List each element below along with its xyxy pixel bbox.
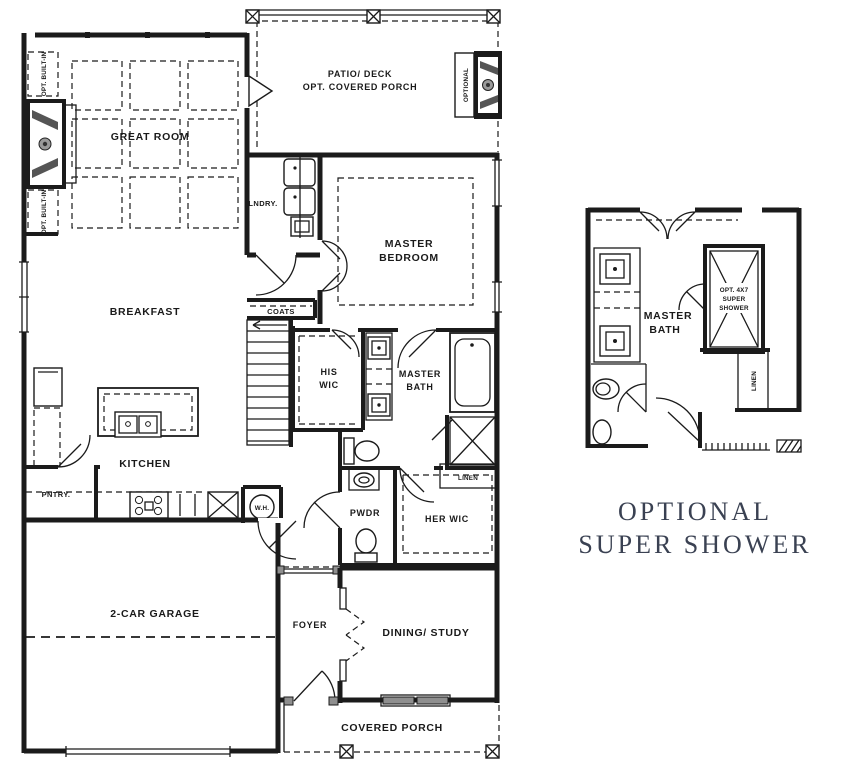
svg-text:OPT. BUILT-IN: OPT. BUILT-IN: [41, 52, 48, 97]
master-entry-doors: [322, 241, 347, 291]
floor-plan-page: PATIO/ DECK OPT. COVERED PORCH OPTIONAL: [0, 0, 860, 768]
her-wic-label: HER WIC: [425, 514, 469, 524]
covered-porch: COVERED PORCH: [284, 703, 499, 758]
pantry-door: [58, 435, 90, 467]
master-bath-label-2: BATH: [406, 382, 433, 392]
inset-linen: LINEN: [738, 352, 768, 410]
her-wic-door: [400, 468, 434, 502]
inset-toilet-door: [618, 384, 646, 412]
inset-master-bath-label-2: BATH: [649, 324, 680, 336]
foyer-label: FOYER: [293, 620, 328, 630]
patio-deck: PATIO/ DECK OPT. COVERED PORCH OPTIONAL: [246, 10, 502, 152]
range: [130, 492, 168, 518]
caption: OPTIONAL SUPER SHOWER: [578, 497, 811, 559]
inset-vanity: [594, 248, 640, 362]
kitchen-island: [98, 388, 198, 437]
inset-master-bath-label-1: MASTER: [644, 310, 693, 322]
foyer: FOYER: [276, 566, 364, 705]
pantry-label: PNTRY.: [42, 490, 71, 499]
super-shower-inset: MASTER BATH OPT. 4X7 SUPER SHOWER LINEN: [588, 208, 801, 452]
powder-label: PWDR: [350, 508, 380, 518]
breakfast-label: BREAKFAST: [110, 306, 180, 318]
caption-line-1: OPTIONAL: [618, 497, 772, 526]
pantry: PNTRY.: [24, 435, 100, 520]
inset-super-shower: OPT. 4X7 SUPER SHOWER: [705, 246, 763, 352]
master-bedroom-label-1: MASTER: [385, 238, 434, 250]
bathtub: [450, 333, 495, 412]
master-bath-door: [398, 330, 436, 368]
laundry-label: LNDRY.: [248, 199, 277, 208]
window-master-2: [492, 282, 502, 312]
his-wic-label-1: HIS: [320, 367, 337, 377]
outer-walls: [19, 32, 502, 753]
optional-fireplace: OPTIONAL: [455, 51, 502, 119]
garage-label: 2-CAR GARAGE: [110, 608, 200, 620]
powder-room: PWDR: [304, 469, 380, 562]
ceiling-grid: [72, 61, 238, 228]
inset-shower-door: [679, 284, 705, 310]
his-wic-door: [332, 330, 359, 357]
patio-label-2: OPT. COVERED PORCH: [303, 82, 418, 92]
inset-toilet-room: [591, 364, 646, 444]
water-heater-label: W.H.: [255, 505, 269, 512]
master-bedroom-label-2: BEDROOM: [379, 252, 439, 264]
opt-built-in-bottom: OPT. BUILT-IN: [24, 190, 58, 235]
caption-line-2: SUPER SHOWER: [578, 530, 811, 559]
floor-plan-svg: PATIO/ DECK OPT. COVERED PORCH OPTIONAL: [0, 0, 860, 768]
window-master-1: [492, 160, 502, 206]
fireplace: [28, 101, 76, 187]
powder-door: [304, 492, 340, 528]
inset-shower-label-3: SHOWER: [719, 305, 749, 312]
bath-vanity: [366, 333, 392, 420]
inset-shower-label-1: OPT. 4X7: [720, 287, 749, 294]
linen-label: LINEN: [458, 475, 478, 482]
french-doors: [340, 588, 364, 681]
her-wic: HER WIC: [400, 468, 492, 553]
inset-linen-label: LINEN: [751, 371, 758, 391]
garage-door: [66, 746, 230, 757]
great-room-label: GREAT ROOM: [111, 131, 190, 143]
master-bath: HIS WIC MASTER BATH: [293, 326, 497, 565]
patio-label-1: PATIO/ DECK: [328, 69, 392, 79]
garage: 2-CAR GARAGE: [24, 518, 296, 757]
patio-door: [249, 76, 272, 106]
great-room: GREAT ROOM OPT. BUILT-IN OPT. BUILT-IN: [24, 52, 238, 235]
inset-hall-door: [656, 398, 700, 442]
his-wic-label-2: WIC: [319, 380, 339, 390]
breakfast-kitchen: BREAKFAST KITCHEN: [24, 306, 281, 523]
svg-text:OPT. BUILT-IN: OPT. BUILT-IN: [41, 190, 48, 235]
dining-label: DINING/ STUDY: [382, 627, 469, 639]
master-bedroom: MASTER BEDROOM: [322, 178, 473, 305]
coats-closet: COATS: [247, 300, 315, 318]
dining-study: DINING/ STUDY: [340, 568, 497, 706]
dishwasher: [208, 492, 238, 518]
coats-label: COATS: [267, 307, 295, 316]
covered-porch-label: COVERED PORCH: [341, 722, 443, 734]
inset-hatch-block: [777, 440, 801, 452]
kitchen-label: KITCHEN: [119, 458, 171, 470]
stairs-direction-arrow: [253, 321, 287, 329]
master-bath-label-1: MASTER: [399, 369, 441, 379]
stairs: [247, 318, 291, 447]
inset-entry-doors: [640, 212, 695, 239]
opt-built-in-top: OPT. BUILT-IN: [28, 52, 58, 97]
shower: [432, 415, 497, 468]
inset-shower-label-2: SUPER: [723, 296, 746, 303]
window-breakfast: [19, 262, 29, 332]
bath-toilet: [344, 438, 379, 464]
optional-vertical-label: OPTIONAL: [463, 68, 470, 102]
